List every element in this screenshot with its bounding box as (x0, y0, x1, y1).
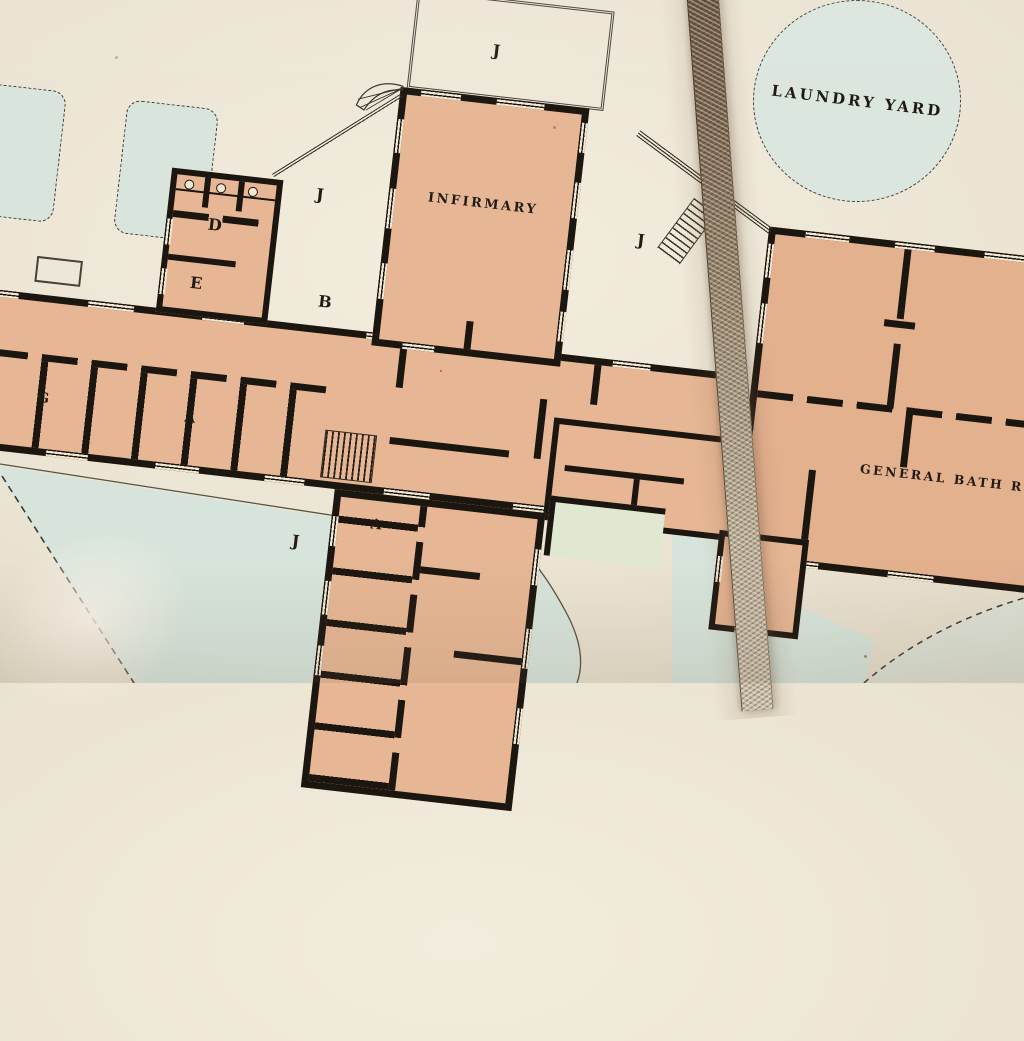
window-opening (377, 263, 388, 300)
paper-speck (864, 655, 867, 658)
de-block-building (156, 168, 284, 325)
window-opening (521, 628, 532, 669)
interior-wall (887, 343, 901, 408)
interior-wall (420, 566, 480, 580)
interior-wall (590, 365, 601, 406)
ward-label-a-main: A (184, 410, 197, 427)
window-opening (385, 188, 396, 229)
interior-wall (389, 437, 509, 458)
paper-speck (553, 126, 556, 129)
window-opening (570, 182, 581, 219)
room-label-g: G (36, 390, 50, 407)
court-label-right: J (636, 230, 646, 250)
window-opening (393, 119, 404, 154)
room-label-b: B (317, 292, 333, 312)
ward-label-a-south: A (370, 516, 383, 533)
interior-wall (453, 651, 521, 666)
toilet-pan-circle (216, 183, 227, 194)
floor-plan: J J D E B J G A J A INFIRMARY GENERAL BA… (0, 0, 1024, 1041)
infirmary-building (371, 87, 589, 367)
interior-wall (884, 319, 916, 329)
room-label-d: D (207, 215, 223, 235)
court-label-bottom: J (291, 531, 301, 551)
window-opening (577, 123, 587, 154)
room-label-e: E (189, 273, 203, 293)
interior-wall (168, 254, 236, 268)
staircase (320, 430, 377, 484)
interior-wall (564, 465, 684, 485)
window-opening (512, 708, 523, 745)
paper-speck (440, 370, 442, 372)
south-wing-building (301, 489, 546, 811)
toilet-pan-circle (184, 179, 195, 190)
court-label-left: J (315, 185, 325, 205)
window-opening (158, 268, 168, 295)
window-opening (163, 218, 173, 245)
interior-wall (900, 407, 914, 467)
window-opening (887, 570, 933, 582)
inset-court-green (544, 495, 666, 568)
window-opening (562, 250, 573, 291)
interior-wall (897, 249, 912, 319)
window-opening (895, 241, 936, 252)
window-opening (88, 300, 134, 312)
court-label-top: J (492, 41, 502, 61)
interior-wall (464, 321, 474, 350)
window-opening (805, 231, 850, 243)
window-opening (612, 360, 651, 371)
window-opening (530, 549, 541, 586)
window-opening (0, 288, 19, 299)
interior-wall (534, 399, 548, 459)
floor-plan-photo: { "labels": { "infirmary": "INFIRMARY", … (0, 0, 1024, 683)
toilet-pan-circle (247, 186, 258, 197)
paper-speck (115, 56, 118, 59)
porch-structure (34, 256, 83, 287)
interior-wall (396, 343, 408, 389)
window-opening (984, 251, 1024, 263)
window-opening (556, 311, 566, 342)
fan-canopy (350, 75, 406, 119)
